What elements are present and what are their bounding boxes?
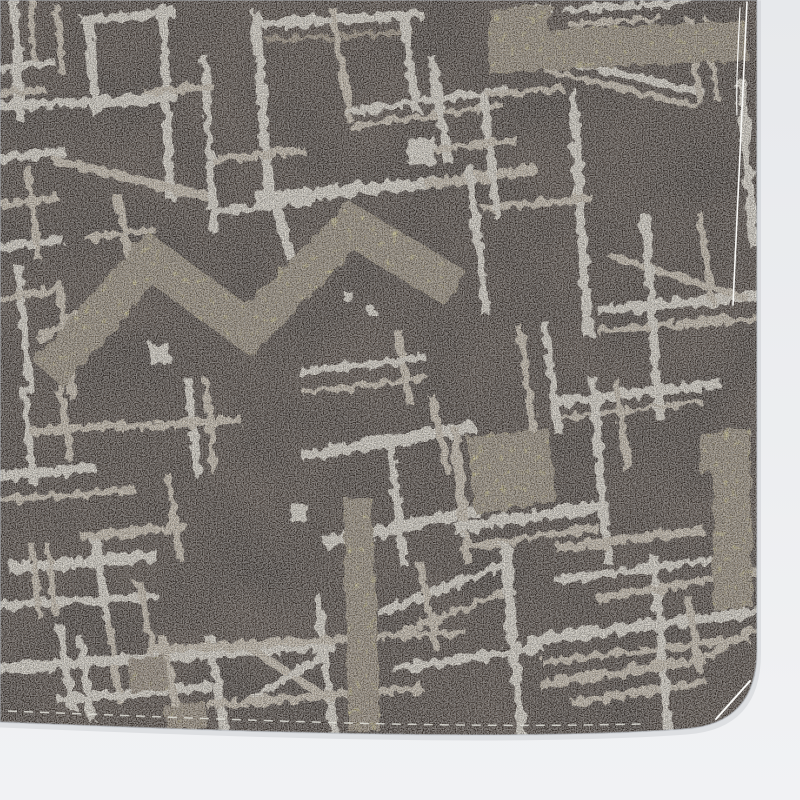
fabric-grain-light [0, 0, 800, 800]
photo-of-fabric-swatch [0, 0, 800, 800]
fabric-photo-canvas [0, 0, 800, 800]
